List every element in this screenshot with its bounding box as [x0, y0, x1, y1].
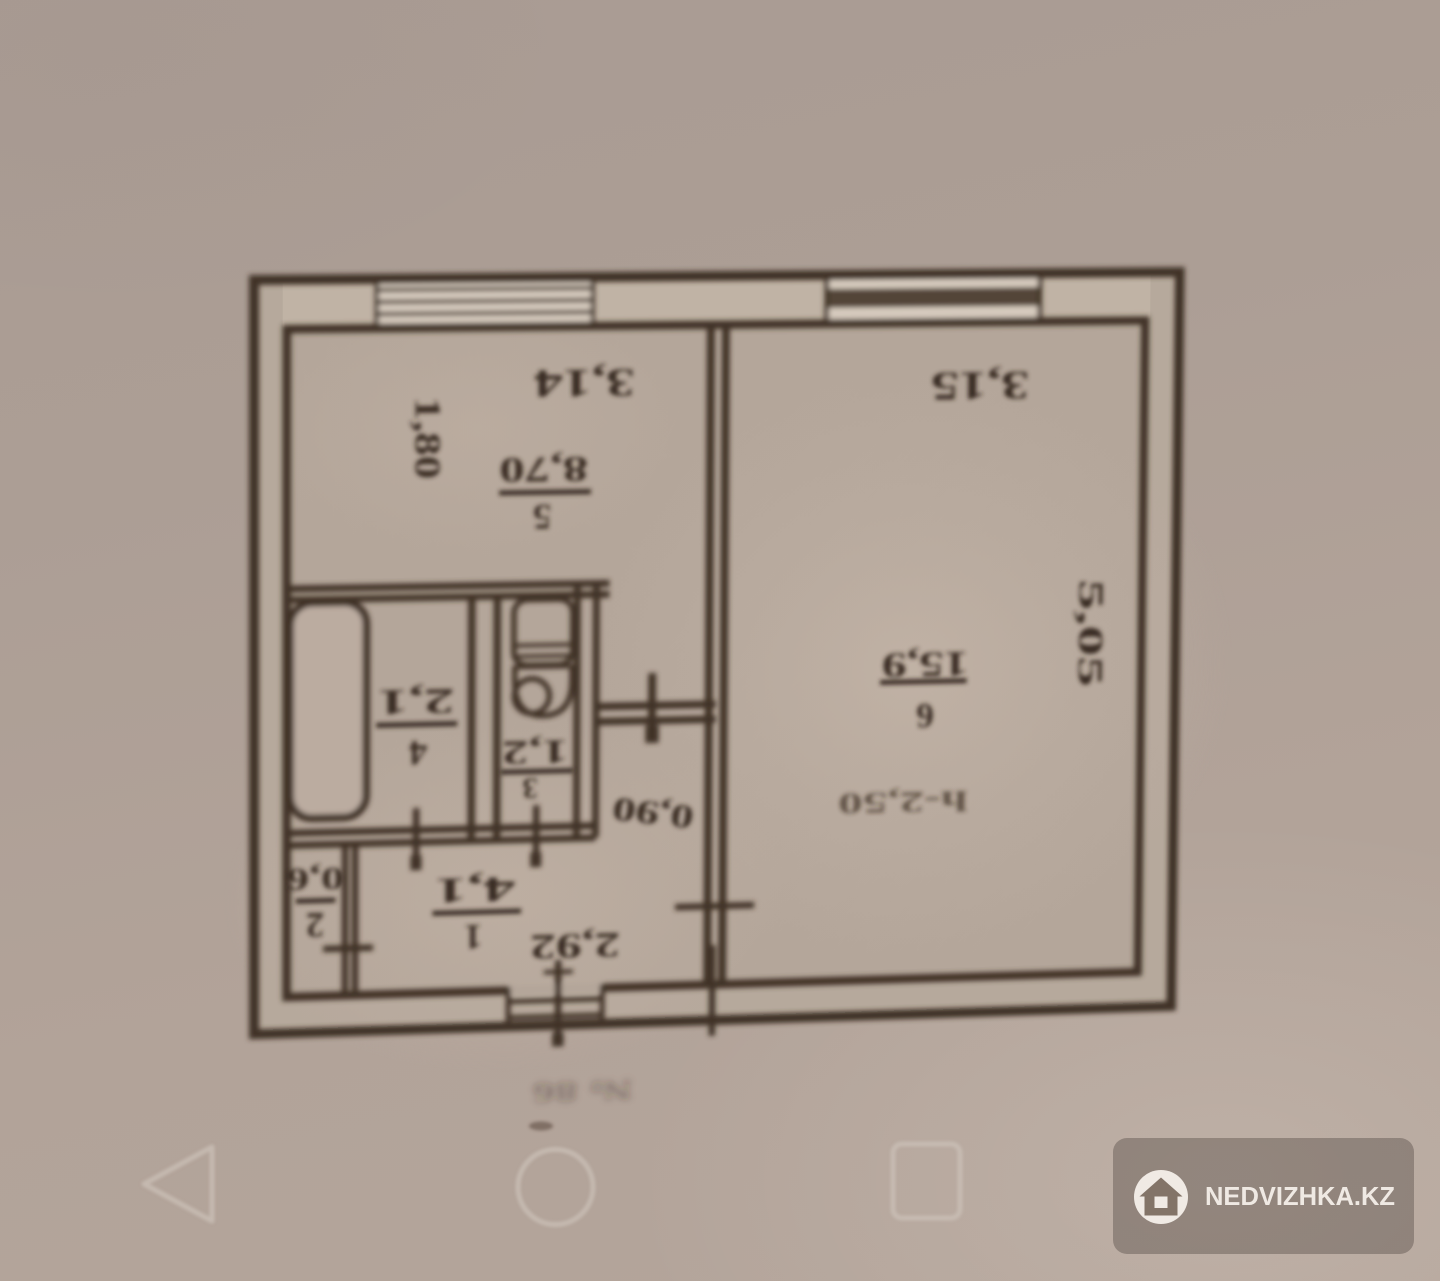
svg-text:NEDVIZHKA.KZ: NEDVIZHKA.KZ: [1205, 1181, 1395, 1211]
